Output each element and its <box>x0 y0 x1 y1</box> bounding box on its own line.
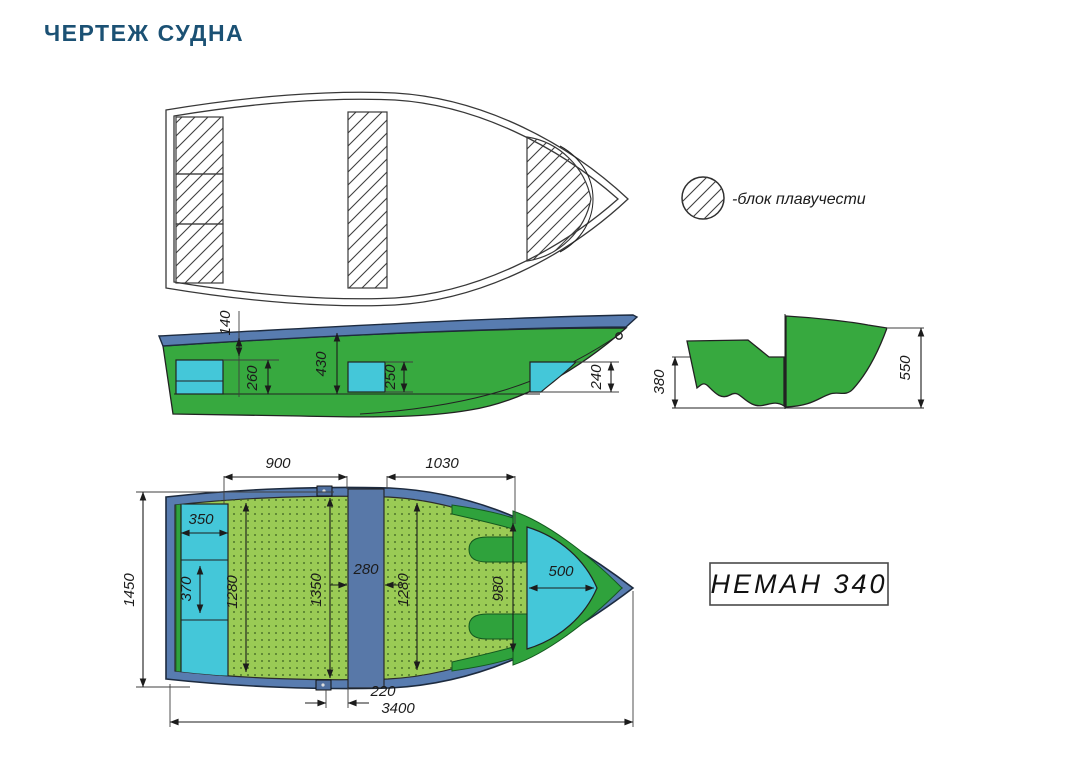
middle-buoyancy-block <box>348 112 387 288</box>
dim-plan-980: 980 <box>490 576 507 602</box>
dim-side-140: 140 <box>217 310 234 336</box>
model-plate-label: НЕМАН 340 <box>710 569 887 599</box>
dim-plan-220: 220 <box>369 683 396 700</box>
plan-middle-seat-band <box>348 489 384 688</box>
dim-transom-550: 550 <box>897 355 914 381</box>
side-stern-seat <box>176 360 223 394</box>
dim-plan-3400: 3400 <box>381 700 415 717</box>
side-view: 140 260 430 250 240 <box>159 310 637 417</box>
dim-plan-500: 500 <box>548 563 574 580</box>
dim-plan-900: 900 <box>265 455 291 472</box>
dim-side-260: 260 <box>244 365 261 392</box>
dim-plan-1350: 1350 <box>308 573 325 607</box>
transom-view: 380 550 <box>651 314 924 409</box>
dim-plan-1280-left: 1280 <box>224 575 241 609</box>
stern-buoyancy-blocks <box>176 117 223 283</box>
dim-transom-380: 380 <box>651 369 668 395</box>
top-view <box>166 92 628 306</box>
dim-plan-1030: 1030 <box>425 455 459 472</box>
dim-plan-350: 350 <box>188 511 214 528</box>
oarlock-top <box>317 486 332 496</box>
side-middle-seat <box>348 362 385 392</box>
dim-plan-1450: 1450 <box>121 573 138 607</box>
model-plate: НЕМАН 340 <box>710 563 888 605</box>
oarlock-bottom <box>316 680 331 690</box>
transom-aft-sections <box>687 340 784 406</box>
dim-plan-280: 280 <box>352 561 379 578</box>
boat-drawing-canvas: -блок плавучести 140 260 430 <box>0 0 1091 766</box>
boat-drawing-page: ЧЕРТЕЖ СУДНА <box>0 0 1091 766</box>
legend-hatch-fill <box>682 177 724 219</box>
dim-side-240: 240 <box>588 364 605 391</box>
dim-side-250: 250 <box>382 364 399 391</box>
transom-bow-sections <box>786 316 887 407</box>
plan-view: 900 1030 350 370 1280 1350 <box>121 455 633 727</box>
dim-plan-370: 370 <box>178 576 195 602</box>
dim-plan-1280-right: 1280 <box>395 573 412 607</box>
side-bow-seat <box>530 362 576 392</box>
dim-side-430: 430 <box>313 351 330 377</box>
legend-label: -блок плавучести <box>732 191 866 208</box>
bow-buoyancy-block <box>527 137 591 261</box>
buoyancy-legend: -блок плавучести <box>682 177 866 219</box>
